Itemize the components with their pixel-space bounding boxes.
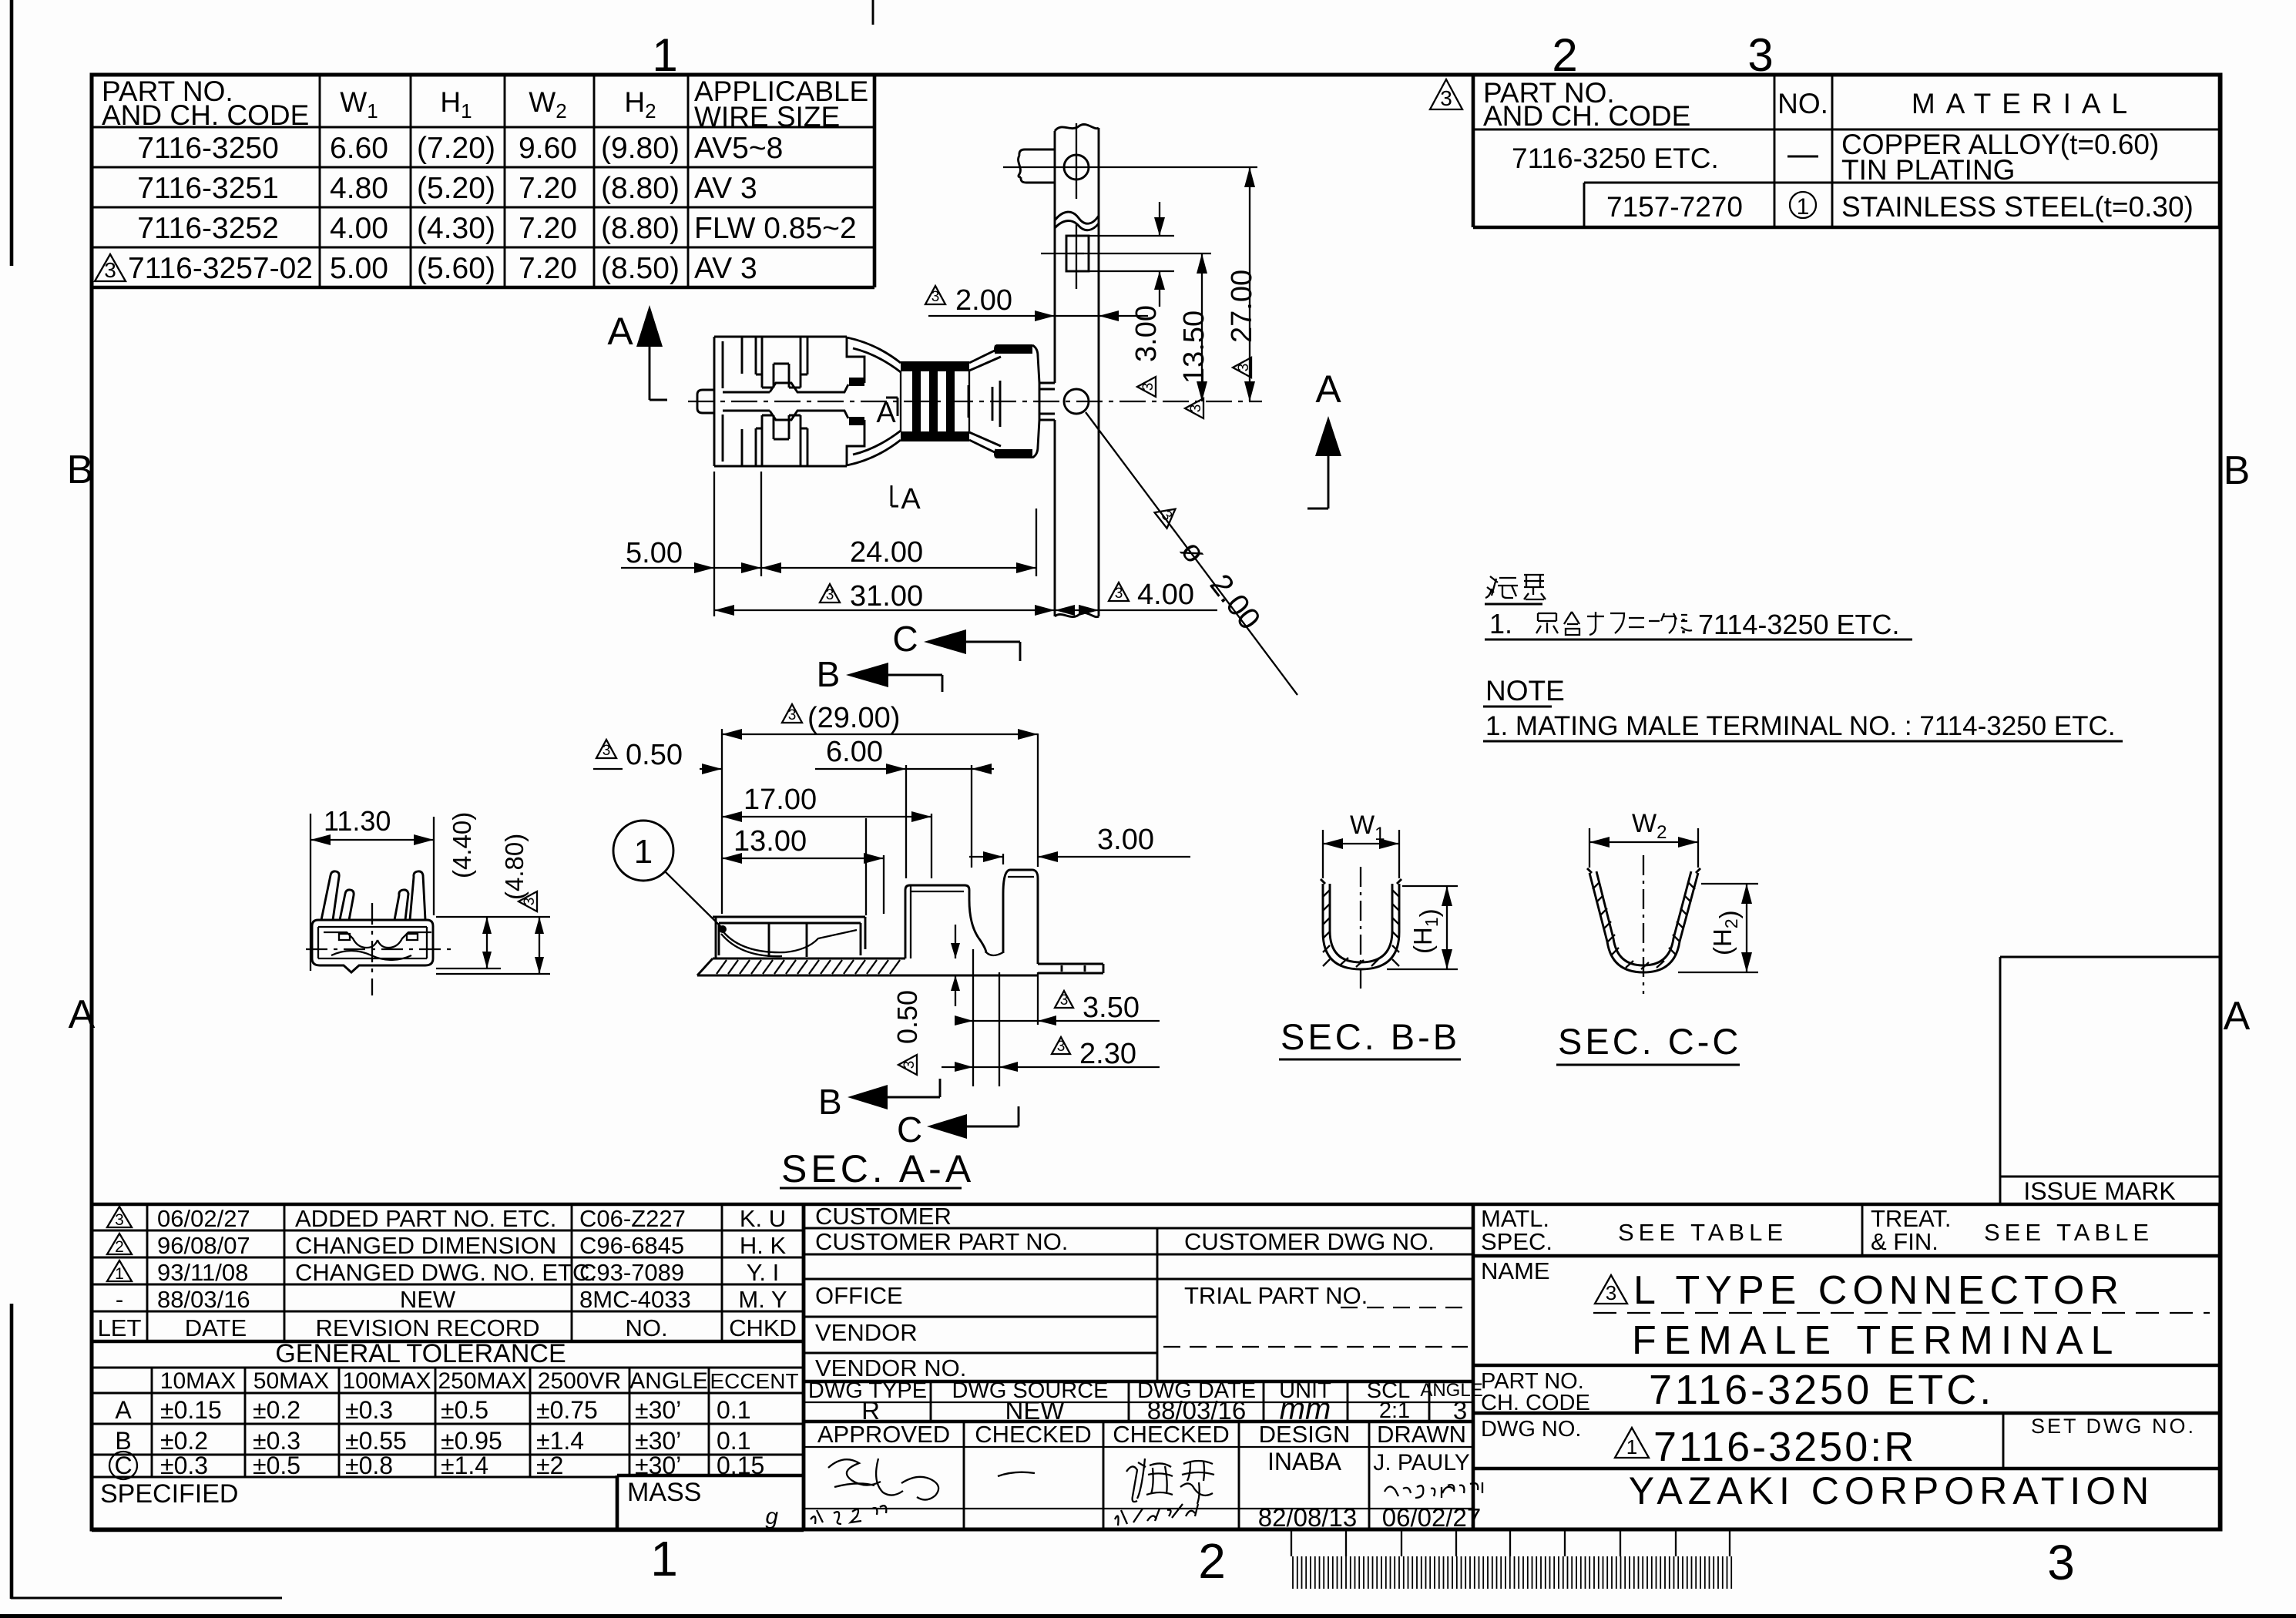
svg-text:SEC. B-B: SEC. B-B bbox=[1281, 1016, 1460, 1057]
svg-text:3: 3 bbox=[1236, 364, 1252, 372]
svg-text:±0.75: ±0.75 bbox=[536, 1396, 598, 1424]
svg-text:H. K: H. K bbox=[740, 1232, 787, 1259]
svg-text:±0.95: ±0.95 bbox=[441, 1427, 502, 1455]
svg-text:SET DWG NO.: SET DWG NO. bbox=[2031, 1415, 2196, 1438]
svg-text:NAME: NAME bbox=[1481, 1257, 1550, 1284]
svg-text:TRIAL PART NO.: TRIAL PART NO. bbox=[1184, 1282, 1368, 1309]
svg-text:31.00: 31.00 bbox=[850, 580, 923, 613]
svg-text:& FIN.: & FIN. bbox=[1871, 1228, 1939, 1255]
svg-text:NEW: NEW bbox=[400, 1286, 456, 1313]
svg-text:STAINLESS STEEL(t=0.30): STAINLESS STEEL(t=0.30) bbox=[1841, 191, 2194, 223]
svg-text:10MAX: 10MAX bbox=[160, 1368, 236, 1394]
svg-text:A: A bbox=[2224, 994, 2251, 1039]
svg-text:DATE: DATE bbox=[185, 1314, 247, 1341]
svg-text:2:1: 2:1 bbox=[1379, 1398, 1410, 1423]
svg-text:±30’: ±30’ bbox=[635, 1396, 681, 1424]
svg-text:7116-3251: 7116-3251 bbox=[137, 172, 279, 205]
svg-text:A: A bbox=[69, 992, 96, 1037]
svg-text:6.00: 6.00 bbox=[826, 736, 883, 768]
svg-text:6.60: 6.60 bbox=[330, 132, 388, 165]
svg-text:SEC. A-A: SEC. A-A bbox=[781, 1147, 975, 1190]
svg-text:1: 1 bbox=[1626, 1435, 1637, 1459]
svg-text:FLW 0.85~2: FLW 0.85~2 bbox=[694, 212, 857, 245]
svg-text:7116-3250 ETC.: 7116-3250 ETC. bbox=[1512, 143, 1719, 174]
svg-text:0.15: 0.15 bbox=[717, 1452, 764, 1479]
svg-text:100MAX: 100MAX bbox=[342, 1368, 431, 1394]
svg-text:27.00: 27.00 bbox=[1226, 270, 1258, 343]
svg-text:SEC. C-C: SEC. C-C bbox=[1558, 1021, 1741, 1062]
svg-text:B: B bbox=[115, 1427, 131, 1455]
svg-text:H1: H1 bbox=[440, 86, 472, 123]
svg-text:3: 3 bbox=[2047, 1535, 2075, 1590]
svg-text:CUSTOMER DWG NO.: CUSTOMER DWG NO. bbox=[1184, 1228, 1435, 1255]
svg-text:96/08/07: 96/08/07 bbox=[157, 1232, 250, 1259]
svg-text:1. MATING MALE TERMINAL NO. :: 1. MATING MALE TERMINAL NO. : 7114-3250 … bbox=[1485, 711, 2116, 741]
svg-text:7.20: 7.20 bbox=[519, 212, 577, 245]
svg-text:NO.: NO. bbox=[1777, 88, 1828, 119]
svg-text:3.00: 3.00 bbox=[1097, 824, 1154, 856]
svg-text:-: - bbox=[116, 1286, 123, 1313]
svg-text:FEMALE TERMINAL: FEMALE TERMINAL bbox=[1632, 1318, 2120, 1363]
svg-text:C06-Z227: C06-Z227 bbox=[579, 1205, 686, 1232]
svg-text:(H1): (H1) bbox=[1408, 908, 1443, 954]
svg-text:1: 1 bbox=[115, 1265, 124, 1283]
svg-text:0.50: 0.50 bbox=[626, 739, 683, 771]
svg-text:7157-7270: 7157-7270 bbox=[1606, 191, 1743, 223]
svg-text:(9.80): (9.80) bbox=[601, 132, 680, 165]
svg-text:(5.60): (5.60) bbox=[417, 252, 495, 285]
svg-text:3: 3 bbox=[1060, 992, 1069, 1009]
svg-text:ISSUE MARK: ISSUE MARK bbox=[2023, 1177, 2175, 1205]
svg-text:±30’: ±30’ bbox=[635, 1427, 681, 1455]
svg-text:±0.3: ±0.3 bbox=[253, 1427, 300, 1455]
svg-text:3.00: 3.00 bbox=[1130, 305, 1163, 362]
svg-text:K. U: K. U bbox=[740, 1205, 786, 1232]
svg-text:B: B bbox=[2224, 448, 2251, 493]
svg-text:B: B bbox=[67, 448, 94, 492]
svg-text:SPEC.: SPEC. bbox=[1481, 1228, 1552, 1255]
svg-text:7116-3250:R: 7116-3250:R bbox=[1653, 1424, 1916, 1470]
svg-text:A: A bbox=[1315, 368, 1341, 411]
svg-text:SEE TABLE: SEE TABLE bbox=[1618, 1219, 1787, 1246]
svg-text:5.00: 5.00 bbox=[626, 537, 683, 569]
svg-text:17.00: 17.00 bbox=[744, 784, 817, 816]
svg-text:2: 2 bbox=[115, 1238, 124, 1256]
svg-text:LET: LET bbox=[98, 1314, 142, 1341]
svg-text:250MAX: 250MAX bbox=[438, 1368, 526, 1394]
svg-text:2.30: 2.30 bbox=[1079, 1038, 1136, 1070]
svg-text:24.00: 24.00 bbox=[850, 536, 923, 569]
svg-text:M. Y: M. Y bbox=[738, 1286, 787, 1313]
svg-text:±0.3: ±0.3 bbox=[345, 1396, 393, 1424]
svg-text:4.80: 4.80 bbox=[330, 172, 388, 205]
svg-text:82/08/13: 82/08/13 bbox=[1258, 1503, 1357, 1532]
svg-text:2: 2 bbox=[1552, 29, 1577, 81]
svg-text:93/11/08: 93/11/08 bbox=[157, 1259, 248, 1286]
svg-text:88/03/16: 88/03/16 bbox=[157, 1286, 250, 1313]
svg-text:WIRE SIZE: WIRE SIZE bbox=[694, 101, 840, 133]
svg-text:CHANGED DWG. NO. ETC.: CHANGED DWG. NO. ETC. bbox=[295, 1259, 596, 1286]
svg-text:A: A bbox=[115, 1396, 132, 1424]
svg-text:NOTE: NOTE bbox=[1485, 675, 1565, 707]
svg-text:OFFICE: OFFICE bbox=[815, 1282, 903, 1309]
svg-text:3: 3 bbox=[1606, 1281, 1616, 1304]
svg-text:1: 1 bbox=[634, 833, 653, 871]
svg-text:Y. I: Y. I bbox=[747, 1259, 780, 1286]
svg-text:DRAWN: DRAWN bbox=[1377, 1421, 1466, 1448]
svg-text:06/02/27: 06/02/27 bbox=[1382, 1503, 1481, 1532]
svg-text:H2: H2 bbox=[624, 86, 656, 123]
svg-text:J. PAULY: J. PAULY bbox=[1373, 1450, 1470, 1475]
svg-text:A: A bbox=[607, 310, 633, 353]
svg-text:(29.00): (29.00) bbox=[807, 702, 900, 734]
svg-text:±2: ±2 bbox=[536, 1452, 563, 1479]
svg-text:DWG NO.: DWG NO. bbox=[1481, 1417, 1582, 1442]
svg-text:2500VR: 2500VR bbox=[538, 1368, 621, 1394]
svg-text:CHECKED: CHECKED bbox=[1113, 1421, 1230, 1448]
svg-text:3: 3 bbox=[931, 289, 940, 305]
svg-text:SEE TABLE: SEE TABLE bbox=[1984, 1219, 2153, 1246]
svg-text:11.30: 11.30 bbox=[324, 805, 391, 837]
svg-text:INABA: INABA bbox=[1267, 1448, 1342, 1475]
svg-text:AV 3: AV 3 bbox=[694, 252, 757, 285]
svg-text:(8.80): (8.80) bbox=[601, 212, 680, 245]
svg-text:50MAX: 50MAX bbox=[253, 1368, 329, 1394]
svg-text:CHKD: CHKD bbox=[729, 1314, 797, 1341]
svg-text:±1.4: ±1.4 bbox=[441, 1452, 488, 1479]
svg-text:SPECIFIED: SPECIFIED bbox=[100, 1479, 238, 1509]
svg-text:g: g bbox=[765, 1504, 778, 1529]
svg-text:3: 3 bbox=[1140, 383, 1156, 391]
svg-text:NO.: NO. bbox=[625, 1314, 667, 1341]
svg-text:GENERAL TOLERANCE: GENERAL TOLERANCE bbox=[275, 1339, 566, 1368]
svg-text:(8.50): (8.50) bbox=[601, 252, 680, 285]
svg-text:7116-3250 ETC.: 7116-3250 ETC. bbox=[1649, 1367, 1994, 1413]
svg-text:(H2): (H2) bbox=[1708, 910, 1743, 955]
svg-text:3: 3 bbox=[901, 1061, 918, 1069]
svg-text:A: A bbox=[876, 397, 896, 429]
svg-text:VENDOR NO.: VENDOR NO. bbox=[815, 1354, 966, 1381]
svg-text:±0.5: ±0.5 bbox=[253, 1452, 300, 1479]
svg-text:CUSTOMER: CUSTOMER bbox=[815, 1203, 952, 1230]
svg-text:±0.55: ±0.55 bbox=[345, 1427, 407, 1455]
svg-text:ANGLE: ANGLE bbox=[1420, 1380, 1482, 1401]
svg-text:(8.80): (8.80) bbox=[601, 172, 680, 205]
svg-text:7114-3250 ETC.: 7114-3250 ETC. bbox=[1698, 609, 1900, 640]
svg-text:7.20: 7.20 bbox=[519, 252, 577, 285]
svg-text:C: C bbox=[892, 619, 918, 659]
svg-text:±1.4: ±1.4 bbox=[536, 1427, 584, 1455]
svg-text:CH. CODE: CH. CODE bbox=[1481, 1391, 1590, 1415]
svg-text:MASS: MASS bbox=[627, 1478, 701, 1507]
svg-text:ADDED PART NO. ETC.: ADDED PART NO. ETC. bbox=[295, 1205, 556, 1232]
svg-text:ø: ø bbox=[1174, 534, 1213, 569]
svg-text:±0.5: ±0.5 bbox=[441, 1396, 488, 1424]
svg-text:8MC-4033: 8MC-4033 bbox=[579, 1286, 691, 1313]
svg-text:0.1: 0.1 bbox=[717, 1427, 750, 1455]
svg-text:7.20: 7.20 bbox=[519, 172, 577, 205]
svg-text:3.50: 3.50 bbox=[1083, 992, 1140, 1024]
svg-text:(4.80): (4.80) bbox=[500, 834, 529, 900]
svg-text:±0.2: ±0.2 bbox=[253, 1396, 300, 1424]
svg-text:3: 3 bbox=[1057, 1039, 1066, 1055]
svg-text:C: C bbox=[114, 1452, 132, 1479]
svg-text:4.00: 4.00 bbox=[330, 212, 388, 245]
svg-text:0.1: 0.1 bbox=[717, 1396, 750, 1424]
svg-text:L TYPE CONNECTOR: L TYPE CONNECTOR bbox=[1633, 1268, 2124, 1313]
svg-text:3: 3 bbox=[1115, 586, 1123, 602]
svg-text::: : bbox=[1680, 608, 1687, 639]
svg-text:AND CH. CODE: AND CH. CODE bbox=[102, 99, 309, 131]
svg-text:CUSTOMER PART NO.: CUSTOMER PART NO. bbox=[815, 1228, 1068, 1255]
svg-text:3: 3 bbox=[522, 898, 538, 906]
svg-text:1: 1 bbox=[650, 1531, 678, 1586]
svg-text:4.00: 4.00 bbox=[1137, 579, 1194, 611]
svg-text:C96-6845: C96-6845 bbox=[579, 1232, 684, 1259]
svg-text:W2: W2 bbox=[1632, 809, 1667, 843]
svg-text:AV 3: AV 3 bbox=[694, 172, 757, 205]
svg-text:APPROVED: APPROVED bbox=[817, 1421, 950, 1448]
svg-text:5.00: 5.00 bbox=[330, 252, 388, 285]
svg-text:3: 3 bbox=[115, 1211, 124, 1229]
svg-text:DESIGN: DESIGN bbox=[1259, 1421, 1351, 1448]
svg-text:W1: W1 bbox=[340, 86, 378, 123]
svg-text:W2: W2 bbox=[529, 86, 566, 123]
svg-text:13.00: 13.00 bbox=[733, 825, 807, 858]
svg-text:0.50: 0.50 bbox=[891, 990, 923, 1044]
svg-text:3: 3 bbox=[104, 258, 116, 282]
svg-text:3: 3 bbox=[826, 587, 834, 603]
svg-text:CHECKED: CHECKED bbox=[975, 1421, 1092, 1448]
svg-text:7116-3257-02: 7116-3257-02 bbox=[128, 252, 313, 285]
svg-text:±0.15: ±0.15 bbox=[160, 1396, 222, 1424]
svg-text:7116-3250: 7116-3250 bbox=[137, 132, 279, 165]
svg-text:(5.20): (5.20) bbox=[417, 172, 495, 205]
svg-text:3: 3 bbox=[1747, 29, 1773, 81]
svg-text:(7.20): (7.20) bbox=[417, 132, 495, 165]
svg-text:CHANGED DIMENSION: CHANGED DIMENSION bbox=[295, 1232, 556, 1259]
svg-text:±0.3: ±0.3 bbox=[160, 1452, 208, 1479]
svg-text:TIN PLATING: TIN PLATING bbox=[1841, 154, 2015, 186]
svg-text:9.60: 9.60 bbox=[519, 132, 577, 165]
svg-text:YAZAKI CORPORATION: YAZAKI CORPORATION bbox=[1629, 1469, 2155, 1512]
svg-text:2.00: 2.00 bbox=[1203, 568, 1267, 636]
svg-text:1: 1 bbox=[1797, 194, 1810, 220]
svg-text:MATERIAL: MATERIAL bbox=[1912, 88, 2138, 119]
svg-text:3: 3 bbox=[603, 743, 611, 759]
svg-text:AND CH. CODE: AND CH. CODE bbox=[1483, 100, 1690, 132]
svg-text:C93-7089: C93-7089 bbox=[579, 1259, 684, 1286]
svg-text:3: 3 bbox=[1440, 86, 1452, 110]
svg-text:2.00: 2.00 bbox=[955, 284, 1012, 317]
svg-text:±0.8: ±0.8 bbox=[345, 1452, 393, 1479]
svg-text:ECCENT: ECCENT bbox=[710, 1369, 798, 1393]
svg-text:2: 2 bbox=[1198, 1533, 1226, 1589]
svg-text:(4.30): (4.30) bbox=[417, 212, 495, 245]
svg-text:3: 3 bbox=[788, 707, 797, 723]
svg-text:±30’: ±30’ bbox=[635, 1452, 681, 1479]
svg-text:1.: 1. bbox=[1489, 608, 1512, 639]
svg-text:A: A bbox=[901, 483, 921, 515]
svg-text:VENDOR: VENDOR bbox=[815, 1319, 918, 1346]
svg-text:06/02/27: 06/02/27 bbox=[157, 1205, 250, 1232]
svg-text:±0.2: ±0.2 bbox=[160, 1427, 208, 1455]
svg-text:C: C bbox=[897, 1109, 922, 1150]
svg-text:AV5~8: AV5~8 bbox=[694, 132, 783, 165]
svg-text:3: 3 bbox=[1188, 404, 1204, 413]
svg-text:13.50: 13.50 bbox=[1178, 311, 1210, 384]
svg-text:B: B bbox=[817, 654, 841, 694]
svg-text:ANGLE: ANGLE bbox=[629, 1368, 708, 1394]
svg-text:REVISION RECORD: REVISION RECORD bbox=[315, 1314, 539, 1341]
svg-text:B: B bbox=[818, 1082, 842, 1122]
svg-text:7116-3252: 7116-3252 bbox=[137, 212, 279, 245]
svg-text:(4.40): (4.40) bbox=[448, 812, 476, 878]
